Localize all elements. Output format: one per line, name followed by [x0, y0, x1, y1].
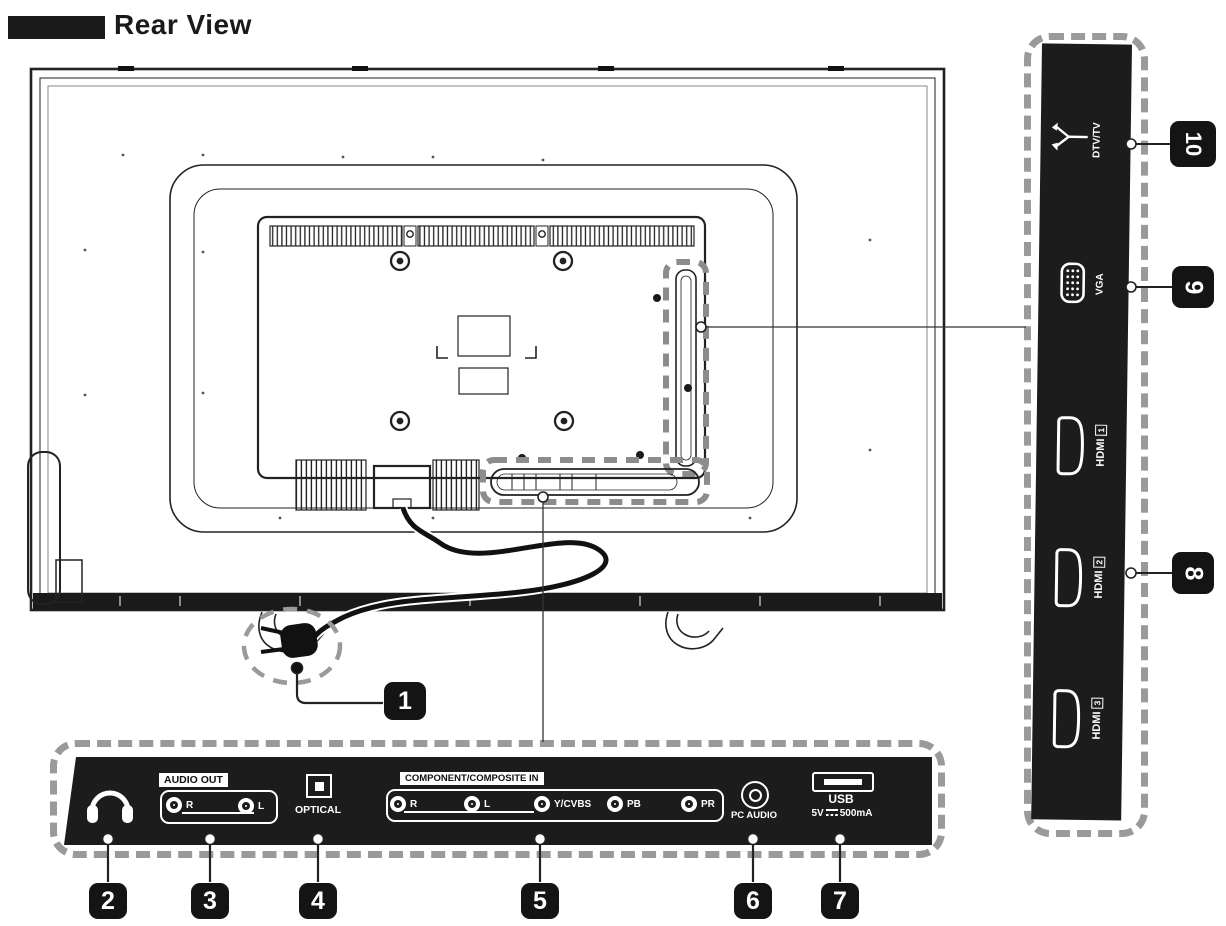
rca-jack-icon: [464, 796, 480, 812]
rca-jack-icon: [166, 797, 182, 813]
hdmi1-numbox: 1: [1095, 425, 1107, 436]
component-jack-l: L: [464, 796, 490, 812]
rear-view-diagram: Rear View AUDIO OUT R L OPTICAL COMPONEN…: [0, 0, 1226, 926]
vga-port-icon: [1058, 261, 1087, 305]
pc-audio-label: PC AUDIO: [721, 810, 787, 821]
dc-symbol-icon: [826, 808, 838, 817]
callout-7: 7: [821, 883, 859, 919]
component-jack-pr: PR: [681, 796, 715, 812]
headphone-icon: [84, 773, 136, 827]
rca-jack-icon: [607, 796, 623, 812]
audio-out-label: AUDIO OUT: [159, 773, 228, 787]
callout-2: 2: [89, 883, 127, 919]
usb-label: USB: [812, 792, 870, 806]
hdmi1-label: HDMI 1: [1092, 410, 1108, 482]
hdmi2-port-icon: [1052, 546, 1085, 610]
pc-audio-port-icon: [741, 781, 769, 809]
callout-6: 6: [734, 883, 772, 919]
rca-jack-icon: [681, 796, 697, 812]
page-title: Rear View: [114, 9, 252, 41]
optical-port-icon: [306, 774, 332, 798]
usb-port-icon: [812, 772, 874, 792]
component-label: COMPONENT/COMPOSITE IN: [400, 772, 544, 785]
bottom-connector-panel: AUDIO OUT R L OPTICAL COMPONENT/COMPOSIT…: [64, 757, 932, 845]
callout-1: 1: [384, 682, 426, 720]
leader-dots: [103, 139, 1137, 845]
component-jack-ycvbs: Y/CVBS: [534, 796, 591, 812]
hdmi1-port-icon: [1054, 414, 1087, 478]
hdmi3-numbox: 3: [1091, 698, 1103, 709]
vga-label: VGA: [1092, 254, 1107, 314]
title-bar: [8, 16, 105, 39]
hdmi2-label: HDMI 2: [1091, 542, 1107, 614]
callout-5: 5: [521, 883, 559, 919]
rca-jack-icon: [390, 796, 406, 812]
component-jack-pb: PB: [607, 796, 641, 812]
side-connector-panel: DTV/TV VGA HDMI 1: [1031, 43, 1132, 820]
rca-jack-icon: [534, 796, 550, 812]
audio-out-jack-l: L: [238, 798, 264, 814]
audio-out-jack-r: R: [166, 797, 193, 813]
callout-10: 10: [1170, 121, 1216, 167]
optical-label: OPTICAL: [278, 804, 358, 816]
usb-current: 500mA: [840, 808, 873, 819]
antenna-icon: [1050, 122, 1090, 153]
rca-jack-icon: [238, 798, 254, 814]
component-jack-r: R: [390, 796, 417, 812]
callout-9: 9: [1172, 266, 1214, 308]
power-plug-icon: [261, 622, 319, 660]
callout-4: 4: [299, 883, 337, 919]
hdmi3-label: HDMI 3: [1089, 683, 1105, 755]
callout-8: 8: [1172, 552, 1214, 594]
hdmi2-numbox: 2: [1093, 557, 1105, 568]
usb-volt: 5V: [811, 808, 823, 819]
hdmi3-port-icon: [1050, 687, 1083, 751]
usb-spec: 5V500mA: [797, 807, 887, 819]
callout-3: 3: [191, 883, 229, 919]
dtv-tv-label: DTV/TV: [1089, 110, 1104, 170]
